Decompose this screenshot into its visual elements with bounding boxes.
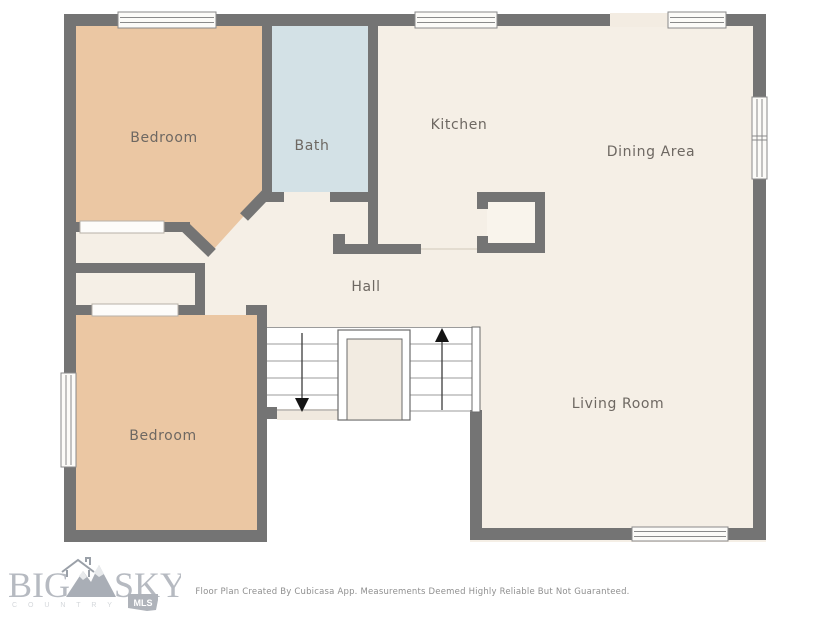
pantry-floor [487,202,535,243]
floor-plan: Bedroom Bath Kitchen Dining Area Hall Be… [0,0,825,556]
window-kitchen-top [415,12,497,28]
wall-kitchen-south-stub [333,234,345,246]
wall-exterior-right [753,14,766,540]
stair-east-wall [472,327,480,412]
window-dining-top [668,12,726,28]
stair-landing [277,409,338,420]
closet-opening-bottom [92,304,178,316]
stair-void [267,412,470,543]
bedroom-bottom-floor [76,315,257,530]
wall-kitchen-west [368,14,378,254]
wall-bedroom-bottom-north-1 [64,305,92,315]
wall-bedroom-bottom-east [257,305,267,542]
label-bath: Bath [295,138,330,154]
wall-pantry-stub-top [477,192,488,209]
house-icon [62,558,94,577]
label-hall: Hall [351,279,380,295]
wall-kitchen-south [333,244,421,254]
wall-exterior-bottom-left [64,530,267,542]
wall-bedroom-bottom-north-2 [178,305,205,315]
closet-opening-top [80,221,164,233]
label-living-room: Living Room [572,396,665,412]
floor-plan-page: Bedroom Bath Kitchen Dining Area Hall Be… [0,0,825,619]
label-dining-area: Dining Area [607,144,695,160]
window-living-bottom [632,527,728,541]
logo-subtext: C O U N T R Y [12,602,116,609]
floor-fills [64,14,766,543]
window-dining-right [752,97,767,179]
wall-closet-middle [64,263,205,273]
label-bedroom-bottom: Bedroom [129,428,197,444]
entry-opening [610,13,668,27]
window-bedroom-bottom-left [61,373,76,467]
wall-living-west [470,410,482,540]
wall-bedroom-bath [262,14,272,202]
window-bedroom-top [118,12,216,28]
big-sky-mls-logo: BIG SKY C O U N T R Y MLS [6,556,181,616]
wall-stair-stub [257,407,277,419]
label-bedroom-top: Bedroom [130,130,198,146]
stair-void-interior [347,339,402,420]
bath-floor [272,26,368,192]
wall-pantry-stub-bottom [477,236,488,253]
logo-word-big: BIG [8,565,70,605]
disclaimer-text: Floor Plan Created By Cubicasa App. Meas… [0,587,825,597]
label-kitchen: Kitchen [431,117,488,133]
badge-label: MLS [134,598,153,608]
